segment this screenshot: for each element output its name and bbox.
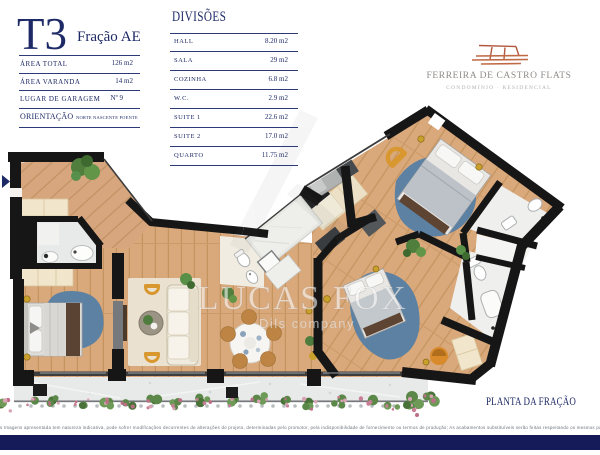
svg-text:LUCAS FOX: LUCAS FOX bbox=[198, 280, 408, 317]
svg-text:Dils company: Dils company bbox=[259, 316, 355, 331]
